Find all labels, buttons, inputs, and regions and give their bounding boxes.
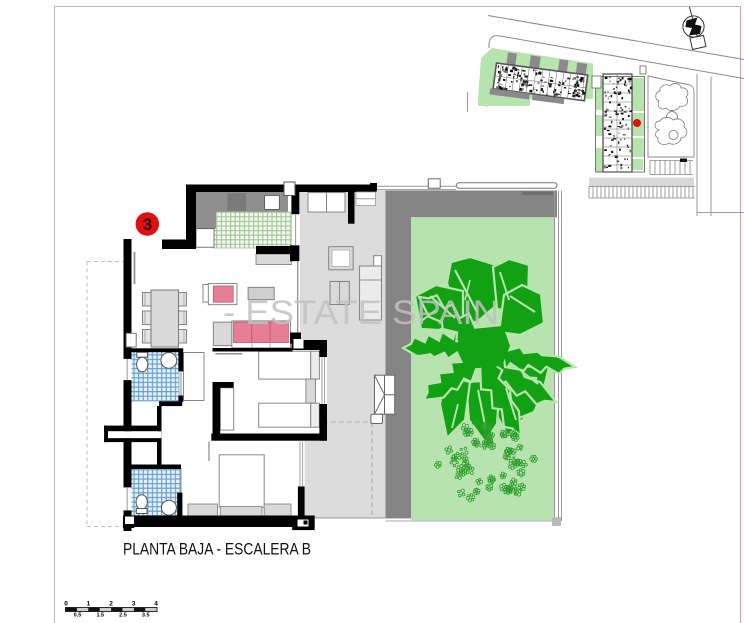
svg-text:3.5: 3.5 (142, 613, 150, 619)
svg-text:1: 1 (87, 601, 91, 608)
svg-text:- ESTATE SPAIN: - ESTATE SPAIN (223, 294, 499, 332)
svg-text:2.5: 2.5 (119, 613, 127, 619)
svg-text:PLANTA BAJA - ESCALERA B: PLANTA BAJA - ESCALERA B (123, 541, 311, 559)
svg-text:0: 0 (64, 601, 68, 608)
svg-text:3: 3 (132, 601, 136, 608)
svg-text:4: 4 (154, 601, 158, 608)
svg-text:0.5: 0.5 (74, 613, 82, 619)
svg-text:3: 3 (143, 215, 152, 234)
svg-text:2: 2 (109, 601, 113, 608)
svg-text:1.5: 1.5 (96, 613, 104, 619)
